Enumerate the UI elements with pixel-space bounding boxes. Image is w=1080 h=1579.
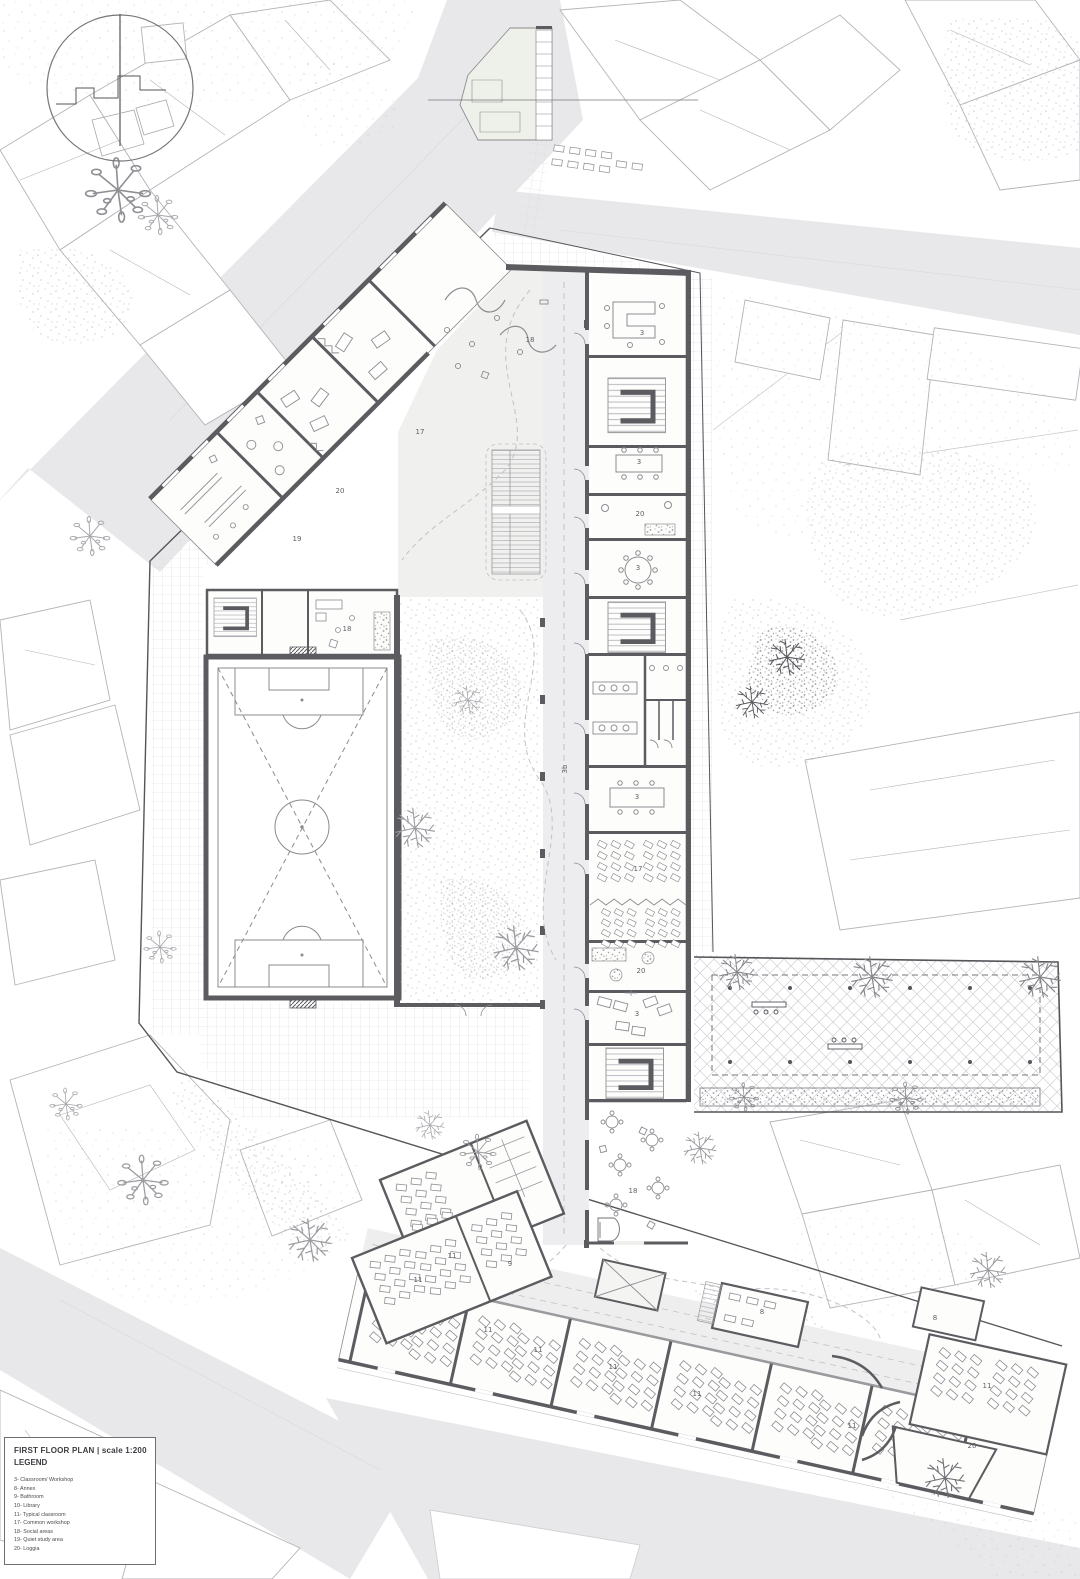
context-block-north (560, 0, 900, 190)
legend-heading: LEGEND (14, 1458, 149, 1467)
goal-south (290, 997, 316, 1008)
legend-item: 17- Common workshop (14, 1519, 149, 1528)
site-plan: 1817201918332033172033b18119111111111188… (0, 0, 1080, 1579)
room-label: 8 (933, 1314, 937, 1322)
room-label: 3b (561, 764, 569, 773)
legend-item: 8- Annex (14, 1485, 149, 1494)
legend-items: 3- Classroom/ Workshop8- Annex9- Bathroo… (14, 1476, 149, 1554)
room-label: 17 (416, 428, 425, 436)
grand-staircase (486, 444, 546, 580)
room-label: 11 (448, 1252, 457, 1260)
goal-north (290, 647, 316, 658)
legend-item: 20- Loggia (14, 1545, 149, 1554)
room-label: 11 (693, 1390, 702, 1398)
room-label: 20 (336, 487, 345, 495)
room-label: 11 (848, 1422, 857, 1430)
room-label: 3 (637, 458, 641, 466)
room-label: 17 (634, 865, 643, 873)
context-block-west (0, 600, 140, 985)
room-label: 19 (293, 535, 302, 543)
piano (598, 1218, 619, 1241)
legend-item: 3- Classroom/ Workshop (14, 1476, 149, 1485)
room-label: 8 (760, 1308, 764, 1316)
room-label: 20 (968, 1442, 977, 1450)
room-label: 18 (526, 336, 535, 344)
room-label: 18 (629, 1187, 638, 1195)
room-label: 3 (635, 793, 639, 801)
legend-item: 10- Library (14, 1502, 149, 1511)
room-label: 3 (640, 329, 644, 337)
room-label: 11 (414, 1276, 423, 1284)
legend-item: 11- Typical classroom (14, 1511, 149, 1520)
legend-panel: FIRST FLOOR PLAN | scale 1:200 LEGEND 3-… (4, 1437, 156, 1565)
room-label: 20 (637, 967, 646, 975)
room-label: 11 (609, 1363, 618, 1371)
room-label: 11 (983, 1382, 992, 1390)
legend-item: 9- Bathroom (14, 1493, 149, 1502)
room-label: 11 (484, 1326, 493, 1334)
legend-title: FIRST FLOOR PLAN | scale 1:200 (14, 1446, 149, 1455)
room-label: 3 (635, 1010, 639, 1018)
courtyard (394, 595, 545, 1016)
room-label: 18 (343, 625, 352, 633)
room-label: 20 (636, 510, 645, 518)
football-pitch (206, 647, 399, 1008)
room-label: 11 (534, 1346, 543, 1354)
plaza-planting-strip (700, 1088, 1040, 1106)
legend-item: 18- Social areas (14, 1528, 149, 1537)
legend-item: 19- Quiet study area (14, 1536, 149, 1545)
street-cafe (552, 145, 644, 177)
room-label: 3 (636, 564, 640, 572)
room-label: 9 (508, 1260, 512, 1268)
